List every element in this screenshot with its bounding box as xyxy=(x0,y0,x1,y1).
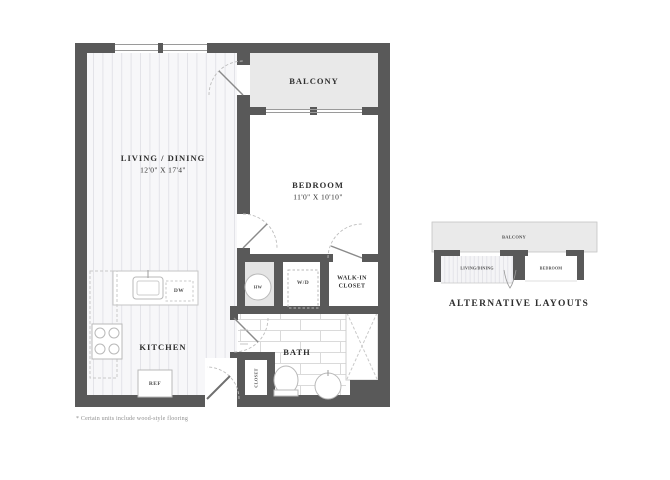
wall-utility-top-right xyxy=(362,254,378,262)
balcony-label: BALCONY xyxy=(289,76,339,86)
flooring-footnote: * Certain units include wood-style floor… xyxy=(76,416,188,422)
living-dining-label: LIVING / DINING xyxy=(121,153,205,163)
washer-dryer-outline xyxy=(288,270,318,308)
bath-label: BATH xyxy=(283,347,310,357)
refrigerator-label: REF xyxy=(149,381,161,387)
living-window-mullion xyxy=(158,43,163,53)
wall-balcony-sill-right xyxy=(362,107,378,115)
entry-vestibule-floor xyxy=(205,358,237,395)
wall-outer-bottom-right xyxy=(237,395,390,407)
kitchen-label: KITCHEN xyxy=(139,342,186,352)
toilet-tank xyxy=(274,390,298,396)
walk-in-closet-label: WALK-IN CLOSET xyxy=(329,276,375,291)
floorplan-drawing xyxy=(0,0,670,480)
dishwasher-label: DW xyxy=(174,288,184,294)
entry-closet-label: CLOSET xyxy=(254,368,259,387)
wall-spine-top xyxy=(237,43,250,65)
living-dining-dimensions: 12'0" X 17'4" xyxy=(140,166,186,175)
wall-bath-left-stub1 xyxy=(230,314,238,320)
washer-dryer-label: W/D xyxy=(297,280,309,286)
wall-closet-top xyxy=(237,352,275,360)
wall-outer-right xyxy=(378,43,390,407)
wall-outer-left xyxy=(75,43,87,407)
wall-balcony-mullion xyxy=(310,107,317,115)
wall-bedroom-left xyxy=(237,95,250,214)
wall-hw-right xyxy=(274,262,283,306)
alt-layout-diagram xyxy=(432,222,597,288)
wall-bath-left-stub2 xyxy=(230,352,238,358)
bath-sink-icon xyxy=(315,373,341,399)
wall-bath-top xyxy=(230,306,378,314)
water-heater-label: HW xyxy=(254,285,262,290)
wall-closet-left xyxy=(237,360,245,395)
wall-utility-top-left xyxy=(237,254,333,262)
floorplan-page: LIVING / DINING 12'0" X 17'4" BEDROOM 11… xyxy=(0,0,670,480)
alt-bedroom-label: BEDROOM xyxy=(540,266,563,271)
alt-living-label: LIVING/DINING xyxy=(460,266,493,271)
bedroom-label: BEDROOM xyxy=(292,180,344,190)
wall-shower-bottom xyxy=(350,380,378,395)
wall-outer-top-right xyxy=(248,43,390,53)
wall-hw-left xyxy=(237,262,245,306)
alt-balcony-label: BALCONY xyxy=(502,235,526,240)
wall-wd-right xyxy=(320,262,329,306)
alternative-layouts-title: ALTERNATIVE LAYOUTS xyxy=(449,299,589,309)
room-fills xyxy=(87,53,378,395)
bedroom-dimensions: 11'0" X 10'10" xyxy=(293,193,343,202)
wall-balcony-sill-left xyxy=(250,107,266,115)
